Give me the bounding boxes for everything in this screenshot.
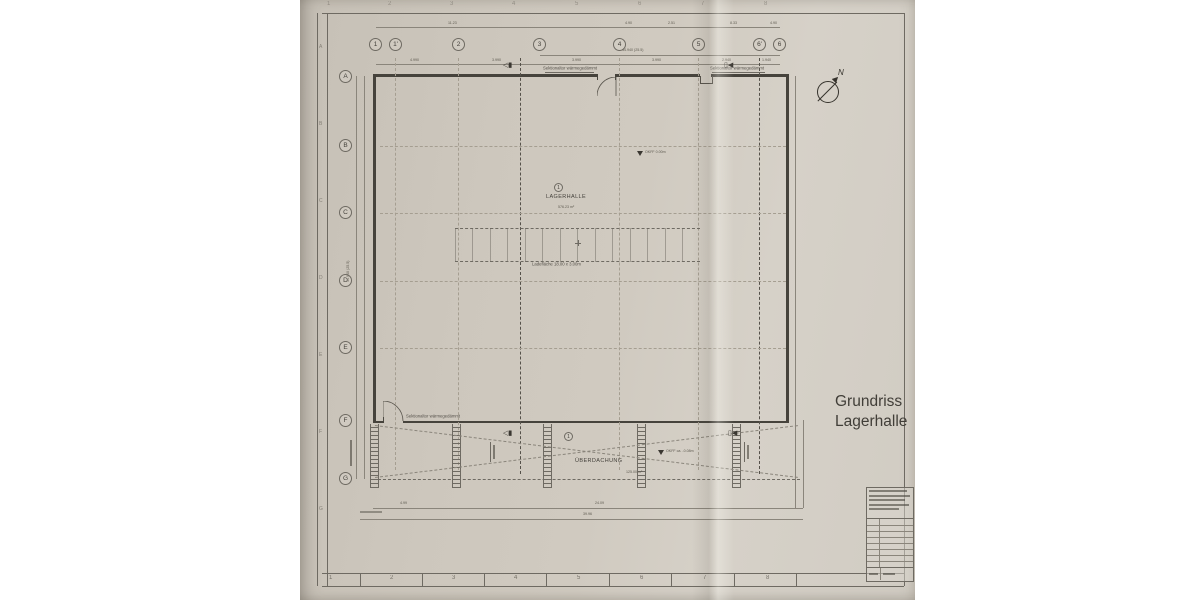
screenshot-root: 1 2 3 4 5 6 7 8 1 2 3 4 5 6 7 8 A B C D … xyxy=(0,0,1200,600)
canopy-level: OKFF ca. -0.08m xyxy=(666,449,694,453)
dim-text: 2.51 xyxy=(668,21,675,25)
level-marker-icon xyxy=(658,450,664,455)
frame-left-label: G xyxy=(319,506,323,512)
annotation-leader xyxy=(490,442,491,462)
dim-line xyxy=(373,508,803,509)
level-marker-icon xyxy=(637,151,643,156)
title-block-row-line xyxy=(867,543,913,544)
section-marker-icon: ◁▮ xyxy=(503,62,512,69)
grid-axis-bubble-A: A xyxy=(339,70,352,83)
frame-top-label: 5 xyxy=(575,1,578,7)
grid-axis-bubble-F: F xyxy=(339,414,352,427)
title-block-row-line xyxy=(867,549,913,550)
annotation-smudge xyxy=(350,440,352,466)
title-block-text-smudge xyxy=(869,499,905,501)
title-block-text-smudge xyxy=(869,495,910,497)
frame-left-line-1 xyxy=(317,13,318,586)
annotation-smudge xyxy=(747,445,749,459)
dim-line xyxy=(803,420,804,508)
grid-axis-bubble-6p: 6' xyxy=(753,38,766,51)
frame-bottom-label: 3 xyxy=(452,575,455,581)
wall-left xyxy=(373,74,376,423)
title-block-row-line xyxy=(867,531,913,532)
frame-bottom-label: 5 xyxy=(577,575,580,581)
section-marker-icon: ◁▮ xyxy=(503,430,512,437)
title-block-text-smudge xyxy=(869,504,909,506)
title-block-footer xyxy=(867,567,913,580)
title-block-row-line xyxy=(867,525,913,526)
title-block-rows xyxy=(867,519,913,567)
frame-tick xyxy=(422,573,423,586)
dim-text: 1.940 xyxy=(762,58,771,62)
room-index-bubble: 1 xyxy=(554,183,563,192)
dim-line xyxy=(540,55,780,56)
plan-title-annotation: Grundriss Lagerhalle xyxy=(835,392,907,432)
grid-axis-bubble-1p: 1' xyxy=(389,38,402,51)
frame-tick xyxy=(484,573,485,586)
frame-left-label: E xyxy=(319,352,322,358)
wall-top-segment xyxy=(616,74,700,77)
door-swing-arc xyxy=(597,77,617,97)
frame-bottom-line-2 xyxy=(322,586,904,587)
title-block-divider xyxy=(880,568,881,580)
grid-axis-bubble-B: B xyxy=(339,139,352,152)
dim-text: 24.09 xyxy=(595,501,604,505)
grid-axis-bubble-1: 1 xyxy=(369,38,382,51)
title-block-header xyxy=(867,488,913,519)
paper-fold xyxy=(692,0,734,600)
frame-tick xyxy=(796,573,797,586)
frame-left-label: D xyxy=(319,275,323,281)
canopy-index-bubble: 1 xyxy=(564,432,573,441)
dim-line xyxy=(356,76,357,479)
wall-top-segment xyxy=(373,74,597,77)
title-block-text-smudge xyxy=(869,573,878,575)
grid-axis-bubble-3: 3 xyxy=(533,38,546,51)
frame-top-label: 1 xyxy=(327,1,330,7)
canopy-area: 125.00 m² xyxy=(626,470,642,474)
drawing-sheet-photo: 1 2 3 4 5 6 7 8 1 2 3 4 5 6 7 8 A B C D … xyxy=(300,0,915,600)
grid-axis-bubble-E: E xyxy=(339,341,352,354)
frame-bottom-line-1 xyxy=(322,573,904,574)
sectional-door-label: Sektionaltor wärmegedämmt xyxy=(543,66,597,71)
frame-bottom-label: 8 xyxy=(766,575,769,581)
frame-top-label: 3 xyxy=(450,1,453,7)
dim-text-rotated: 44.940 (25.5) xyxy=(346,261,350,282)
dim-line xyxy=(795,76,796,508)
dim-text: 4.99 xyxy=(400,501,407,505)
title-block-row-line xyxy=(867,561,913,562)
frame-top-label: 2 xyxy=(388,1,391,7)
grid-line-axis xyxy=(395,58,396,470)
grid-axis-bubble-6: 6 xyxy=(773,38,786,51)
sectional-door-top-left xyxy=(545,72,594,73)
frame-bottom-label: 4 xyxy=(514,575,517,581)
frame-tick xyxy=(671,573,672,586)
grid-line-axis-heavy xyxy=(759,58,760,474)
frame-tick xyxy=(734,573,735,586)
plan-title-line2: Lagerhalle xyxy=(835,412,907,432)
grid-axis-bubble-2: 2 xyxy=(452,38,465,51)
room-name: LAGERHALLE xyxy=(546,194,586,200)
dim-line xyxy=(364,76,365,479)
frame-top-label: 6 xyxy=(638,1,641,7)
title-block-text-smudge xyxy=(869,508,899,510)
title-block xyxy=(866,487,914,582)
frame-left-label: F xyxy=(319,429,322,435)
title-block-text-smudge xyxy=(883,573,895,575)
dim-text: 11.23 xyxy=(448,21,457,25)
frame-tick xyxy=(360,573,361,586)
title-block-row-line xyxy=(867,555,913,556)
center-mark xyxy=(578,240,579,246)
title-block-text-smudge xyxy=(869,490,907,492)
grid-line-axis xyxy=(619,58,620,470)
grid-line-axis xyxy=(458,58,459,470)
room-area: 576.23 m² xyxy=(558,205,574,209)
frame-left-line-2 xyxy=(327,13,328,586)
frame-left-label: A xyxy=(319,44,322,50)
dim-text: 4.90 xyxy=(625,21,632,25)
frame-left-label: B xyxy=(319,121,322,127)
frame-bottom-label: 1 xyxy=(329,575,332,581)
wall-right xyxy=(786,74,789,423)
canopy-front-edge xyxy=(373,479,800,480)
frame-top-label: 4 xyxy=(512,1,515,7)
frame-left-label: C xyxy=(319,198,323,204)
dim-text: 44.940 (25.5) xyxy=(622,48,643,52)
dim-text: 39.96 xyxy=(583,512,592,516)
plan-title-line1: Grundriss xyxy=(835,392,907,412)
title-block-row-line xyxy=(867,537,913,538)
frame-bottom-label: 6 xyxy=(640,575,643,581)
annotation-smudge xyxy=(493,445,495,459)
annotation-leader xyxy=(744,442,745,462)
frame-bottom-label: 2 xyxy=(390,575,393,581)
north-label: N xyxy=(838,68,844,77)
frame-top-line xyxy=(322,13,904,14)
dim-text: 4.90 xyxy=(770,21,777,25)
grid-line-axis-heavy xyxy=(520,58,521,474)
grid-axis-bubble-C: C xyxy=(339,206,352,219)
canopy-name: ÜBERDACHUNG xyxy=(575,458,623,464)
door-swing-arc xyxy=(383,401,404,422)
dim-text: 3.990 xyxy=(572,58,581,62)
dim-text: 3.990 xyxy=(492,58,501,62)
dim-text: 3.990 xyxy=(652,58,661,62)
frame-top-label: 8 xyxy=(764,1,767,7)
grid-axis-bubble-G: G xyxy=(339,472,352,485)
room-level: OKFF 0.00m xyxy=(645,150,666,154)
dim-smudge xyxy=(360,511,382,513)
dim-text: 4.990 xyxy=(410,58,419,62)
loading-strip-label: Ladefläche 18.00 x 3.00m xyxy=(532,262,581,267)
sectional-door-label: Sektionaltor wärmegedämmt xyxy=(406,414,460,419)
frame-tick xyxy=(609,573,610,586)
frame-tick xyxy=(546,573,547,586)
dim-line xyxy=(360,519,803,520)
